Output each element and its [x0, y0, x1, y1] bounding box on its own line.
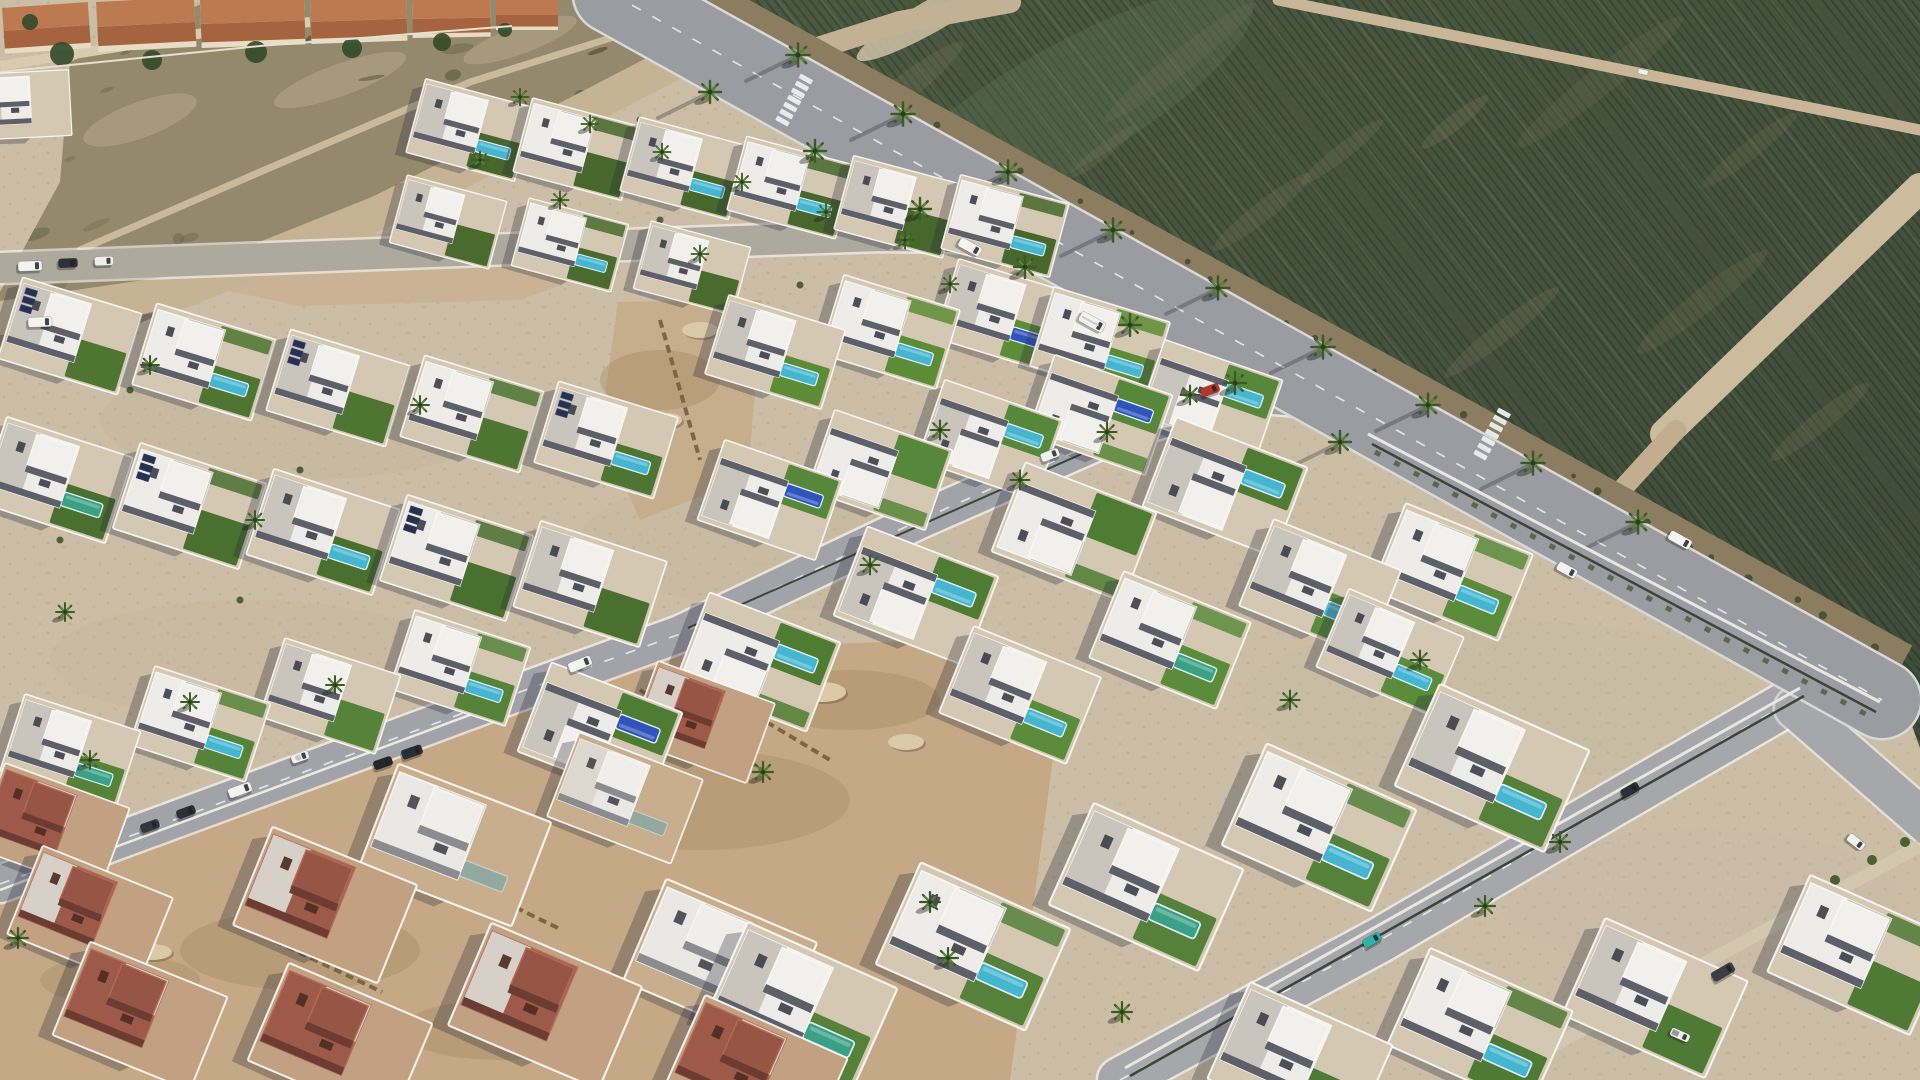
villa-modern — [0, 70, 72, 147]
shoulder-bush — [1594, 487, 1602, 495]
window — [11, 108, 19, 113]
terracotta-house — [96, 0, 196, 52]
tree — [433, 33, 451, 51]
shrub — [297, 467, 304, 474]
tree — [22, 14, 38, 30]
hedge — [1900, 837, 1910, 847]
vehicle-car — [92, 256, 113, 268]
shrub — [797, 282, 804, 289]
tree — [498, 23, 512, 37]
shrub — [237, 597, 244, 604]
tree — [245, 41, 267, 63]
vehicle-van — [16, 261, 42, 274]
vehicle-car — [56, 258, 77, 270]
shoulder-bush — [1130, 230, 1135, 235]
hedge — [1867, 855, 1877, 865]
tree — [142, 50, 162, 70]
shoulder-bush — [1571, 474, 1576, 479]
shoulder-bush — [1460, 411, 1467, 418]
terracotta-house — [2, 2, 91, 54]
aerial-photo-canvas — [0, 0, 1920, 1080]
shoulder-bush — [1078, 198, 1084, 204]
terracotta-house — [200, 0, 306, 48]
villa-plot — [0, 70, 72, 141]
shoulder-bush — [1819, 611, 1827, 619]
dirt-mound — [888, 734, 924, 750]
shrub — [57, 537, 64, 544]
shoulder-bush — [1795, 596, 1802, 603]
tree — [50, 42, 74, 66]
shoulder-bush — [1185, 259, 1191, 265]
shoulder-bush — [1912, 659, 1919, 666]
aerial-photograph — [0, 0, 1920, 1080]
vehicle-van — [26, 317, 52, 330]
tree — [342, 38, 362, 58]
